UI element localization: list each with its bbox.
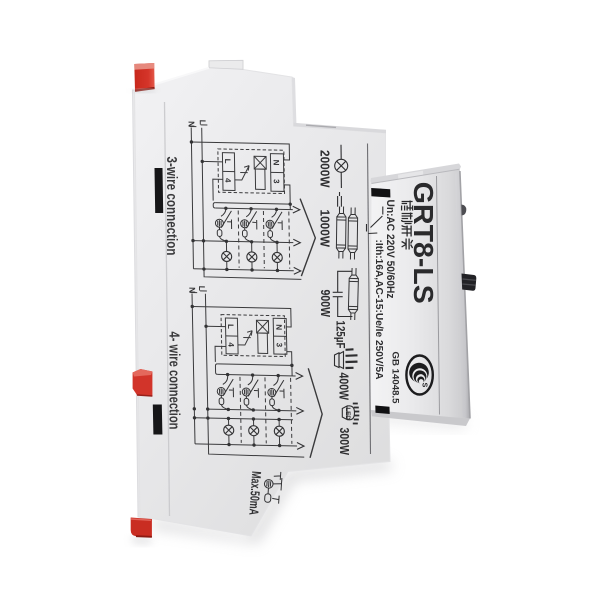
svg-text:3-wire connection: 3-wire connection (163, 157, 179, 256)
svg-text:GB 14048.5: GB 14048.5 (389, 352, 400, 405)
svg-text:Un:AC 220V 50/60Hz: Un:AC 220V 50/60Hz (384, 200, 396, 300)
svg-text:1000W: 1000W (318, 210, 332, 248)
svg-text:3: 3 (272, 179, 281, 184)
svg-text:3: 3 (275, 343, 284, 348)
svg-text:300W: 300W (337, 428, 351, 456)
svg-text:GRT8-LS: GRT8-LS (408, 182, 439, 304)
svg-text:L: L (226, 324, 235, 329)
svg-text:4: 4 (226, 342, 235, 347)
svg-text:2000W: 2000W (318, 150, 332, 188)
svg-text:L: L (197, 286, 207, 291)
svg-text:LED: LED (344, 408, 351, 421)
svg-text:S: S (421, 383, 428, 388)
svg-text:N: N (271, 160, 280, 166)
svg-text:L: L (223, 159, 232, 164)
svg-text:Max.50mA: Max.50mA (246, 471, 264, 516)
svg-text:4: 4 (223, 178, 232, 183)
svg-text:N: N (274, 324, 283, 330)
svg-text:125µF: 125µF (334, 321, 348, 349)
svg-text:900W: 900W (318, 290, 332, 318)
svg-text::Ith:16A,AC-15:Ue/Ie 250V/5A: :Ith:16A,AC-15:Ue/Ie 250V/5A (373, 240, 384, 381)
svg-text:4- wire connection: 4- wire connection (165, 332, 181, 430)
svg-text:400W: 400W (336, 373, 350, 401)
svg-text:L: L (198, 120, 208, 125)
